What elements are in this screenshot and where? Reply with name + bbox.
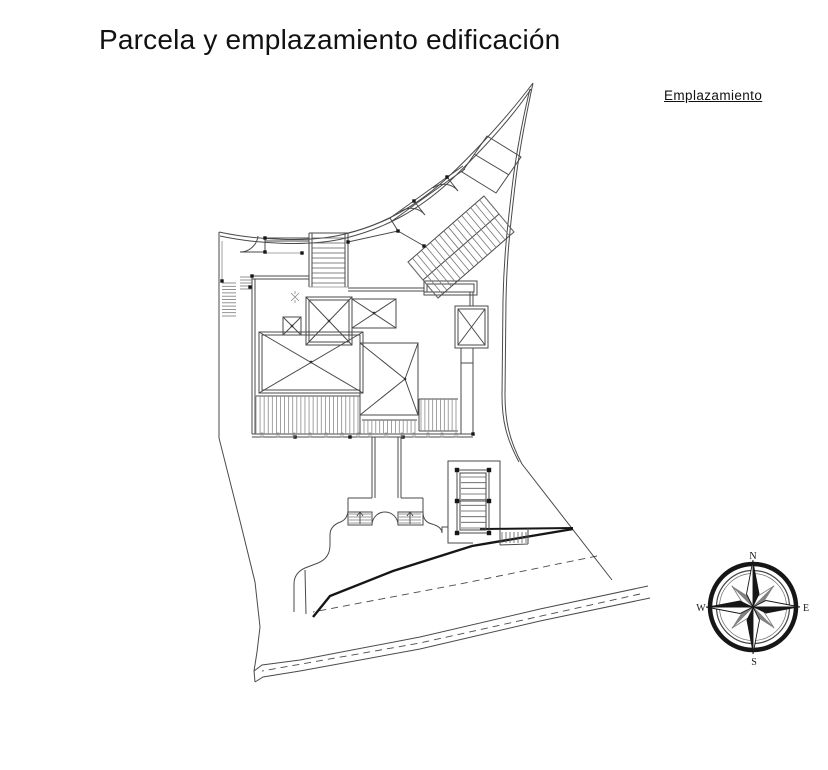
drawing-sheet: Parcela y emplazamiento edificación Empl… <box>0 0 828 770</box>
road-centerlines <box>262 556 640 671</box>
parcel-boundary <box>219 83 650 682</box>
site-plan-drawing: N S W E <box>0 0 828 770</box>
building-walls <box>222 136 521 498</box>
compass-west-label: W <box>696 603 706 614</box>
compass-rose: N S W E <box>696 551 809 668</box>
terrace-area <box>294 461 500 614</box>
compass-needles <box>706 560 800 654</box>
hatch-lines <box>222 196 526 543</box>
compass-east-label: E <box>803 603 809 614</box>
retaining-wall <box>313 528 573 617</box>
compass-south-label: S <box>751 657 757 668</box>
roof-plans <box>256 291 488 434</box>
compass-north-label: N <box>749 551 756 562</box>
